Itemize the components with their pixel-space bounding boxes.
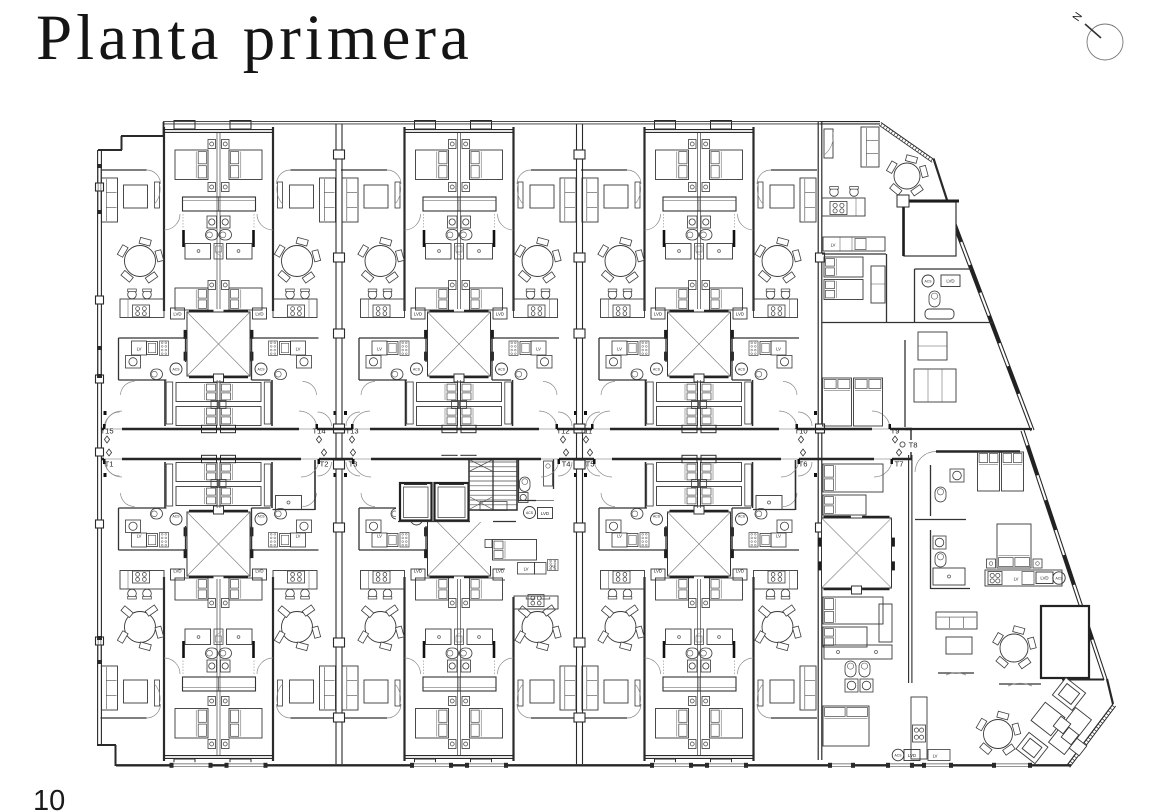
svg-text:ACS: ACS [738,514,746,518]
svg-text:LVD: LVD [654,569,662,574]
svg-text:LVD: LVD [173,569,181,574]
svg-text:LVD: LVD [736,311,744,316]
svg-text:LV: LV [377,347,382,352]
svg-text:T10: T10 [794,427,807,436]
svg-text:T11: T11 [580,427,593,436]
svg-text:ACS: ACS [413,368,421,372]
svg-text:LV: LV [1014,577,1019,582]
svg-text:LVD: LVD [736,569,744,574]
svg-text:LVD: LVD [1040,576,1048,581]
svg-text:LV: LV [137,347,142,352]
svg-text:LV: LV [377,534,382,539]
svg-text:LVD: LVD [541,511,549,516]
svg-text:ACS: ACS [653,368,661,372]
svg-text:T4: T4 [562,460,571,469]
svg-text:ACS: ACS [738,368,746,372]
svg-text:LVD: LVD [654,311,662,316]
svg-text:LV: LV [776,534,781,539]
svg-text:LVD: LVD [414,569,422,574]
svg-text:LV: LV [933,754,938,759]
svg-text:ACS: ACS [925,280,933,284]
svg-text:LVD: LVD [908,753,916,758]
svg-text:ACS: ACS [173,514,181,518]
svg-text:LVD: LVD [496,311,504,316]
svg-text:T9: T9 [891,427,900,436]
svg-text:ACS: ACS [895,754,903,758]
svg-text:T8: T8 [909,441,918,450]
svg-text:ACS: ACS [258,514,266,518]
svg-text:LV: LV [536,347,541,352]
svg-text:ACS: ACS [1056,577,1064,581]
svg-text:N: N [1071,10,1085,23]
svg-text:T5: T5 [586,460,595,469]
svg-text:T2: T2 [320,460,329,469]
svg-text:LVD: LVD [173,311,181,316]
svg-text:T1: T1 [105,460,114,469]
svg-text:T14: T14 [312,427,325,436]
svg-text:T3: T3 [349,460,358,469]
svg-text:LV: LV [831,243,836,248]
svg-text:LVD: LVD [255,311,263,316]
svg-text:LV: LV [296,534,301,539]
svg-text:LV: LV [296,347,301,352]
svg-text:LV: LV [137,534,142,539]
svg-text:ACS: ACS [258,368,266,372]
svg-text:LV: LV [776,347,781,352]
svg-text:LV: LV [617,534,622,539]
svg-text:T12: T12 [556,427,569,436]
svg-text:LVD: LVD [414,311,422,316]
svg-text:T15: T15 [100,427,113,436]
svg-text:ACS: ACS [173,368,181,372]
svg-text:ACS: ACS [526,511,534,515]
svg-text:ACS: ACS [653,514,661,518]
svg-text:LVD: LVD [946,279,954,284]
svg-text:P2: P2 [551,565,555,569]
svg-text:LV: LV [617,347,622,352]
svg-text:LVD: LVD [255,569,263,574]
svg-text:LV: LV [524,567,529,572]
svg-text:T13: T13 [345,427,358,436]
svg-text:T7: T7 [895,460,904,469]
svg-text:LVD: LVD [496,569,504,574]
svg-text:ACS: ACS [498,368,506,372]
svg-text:T6: T6 [799,460,808,469]
